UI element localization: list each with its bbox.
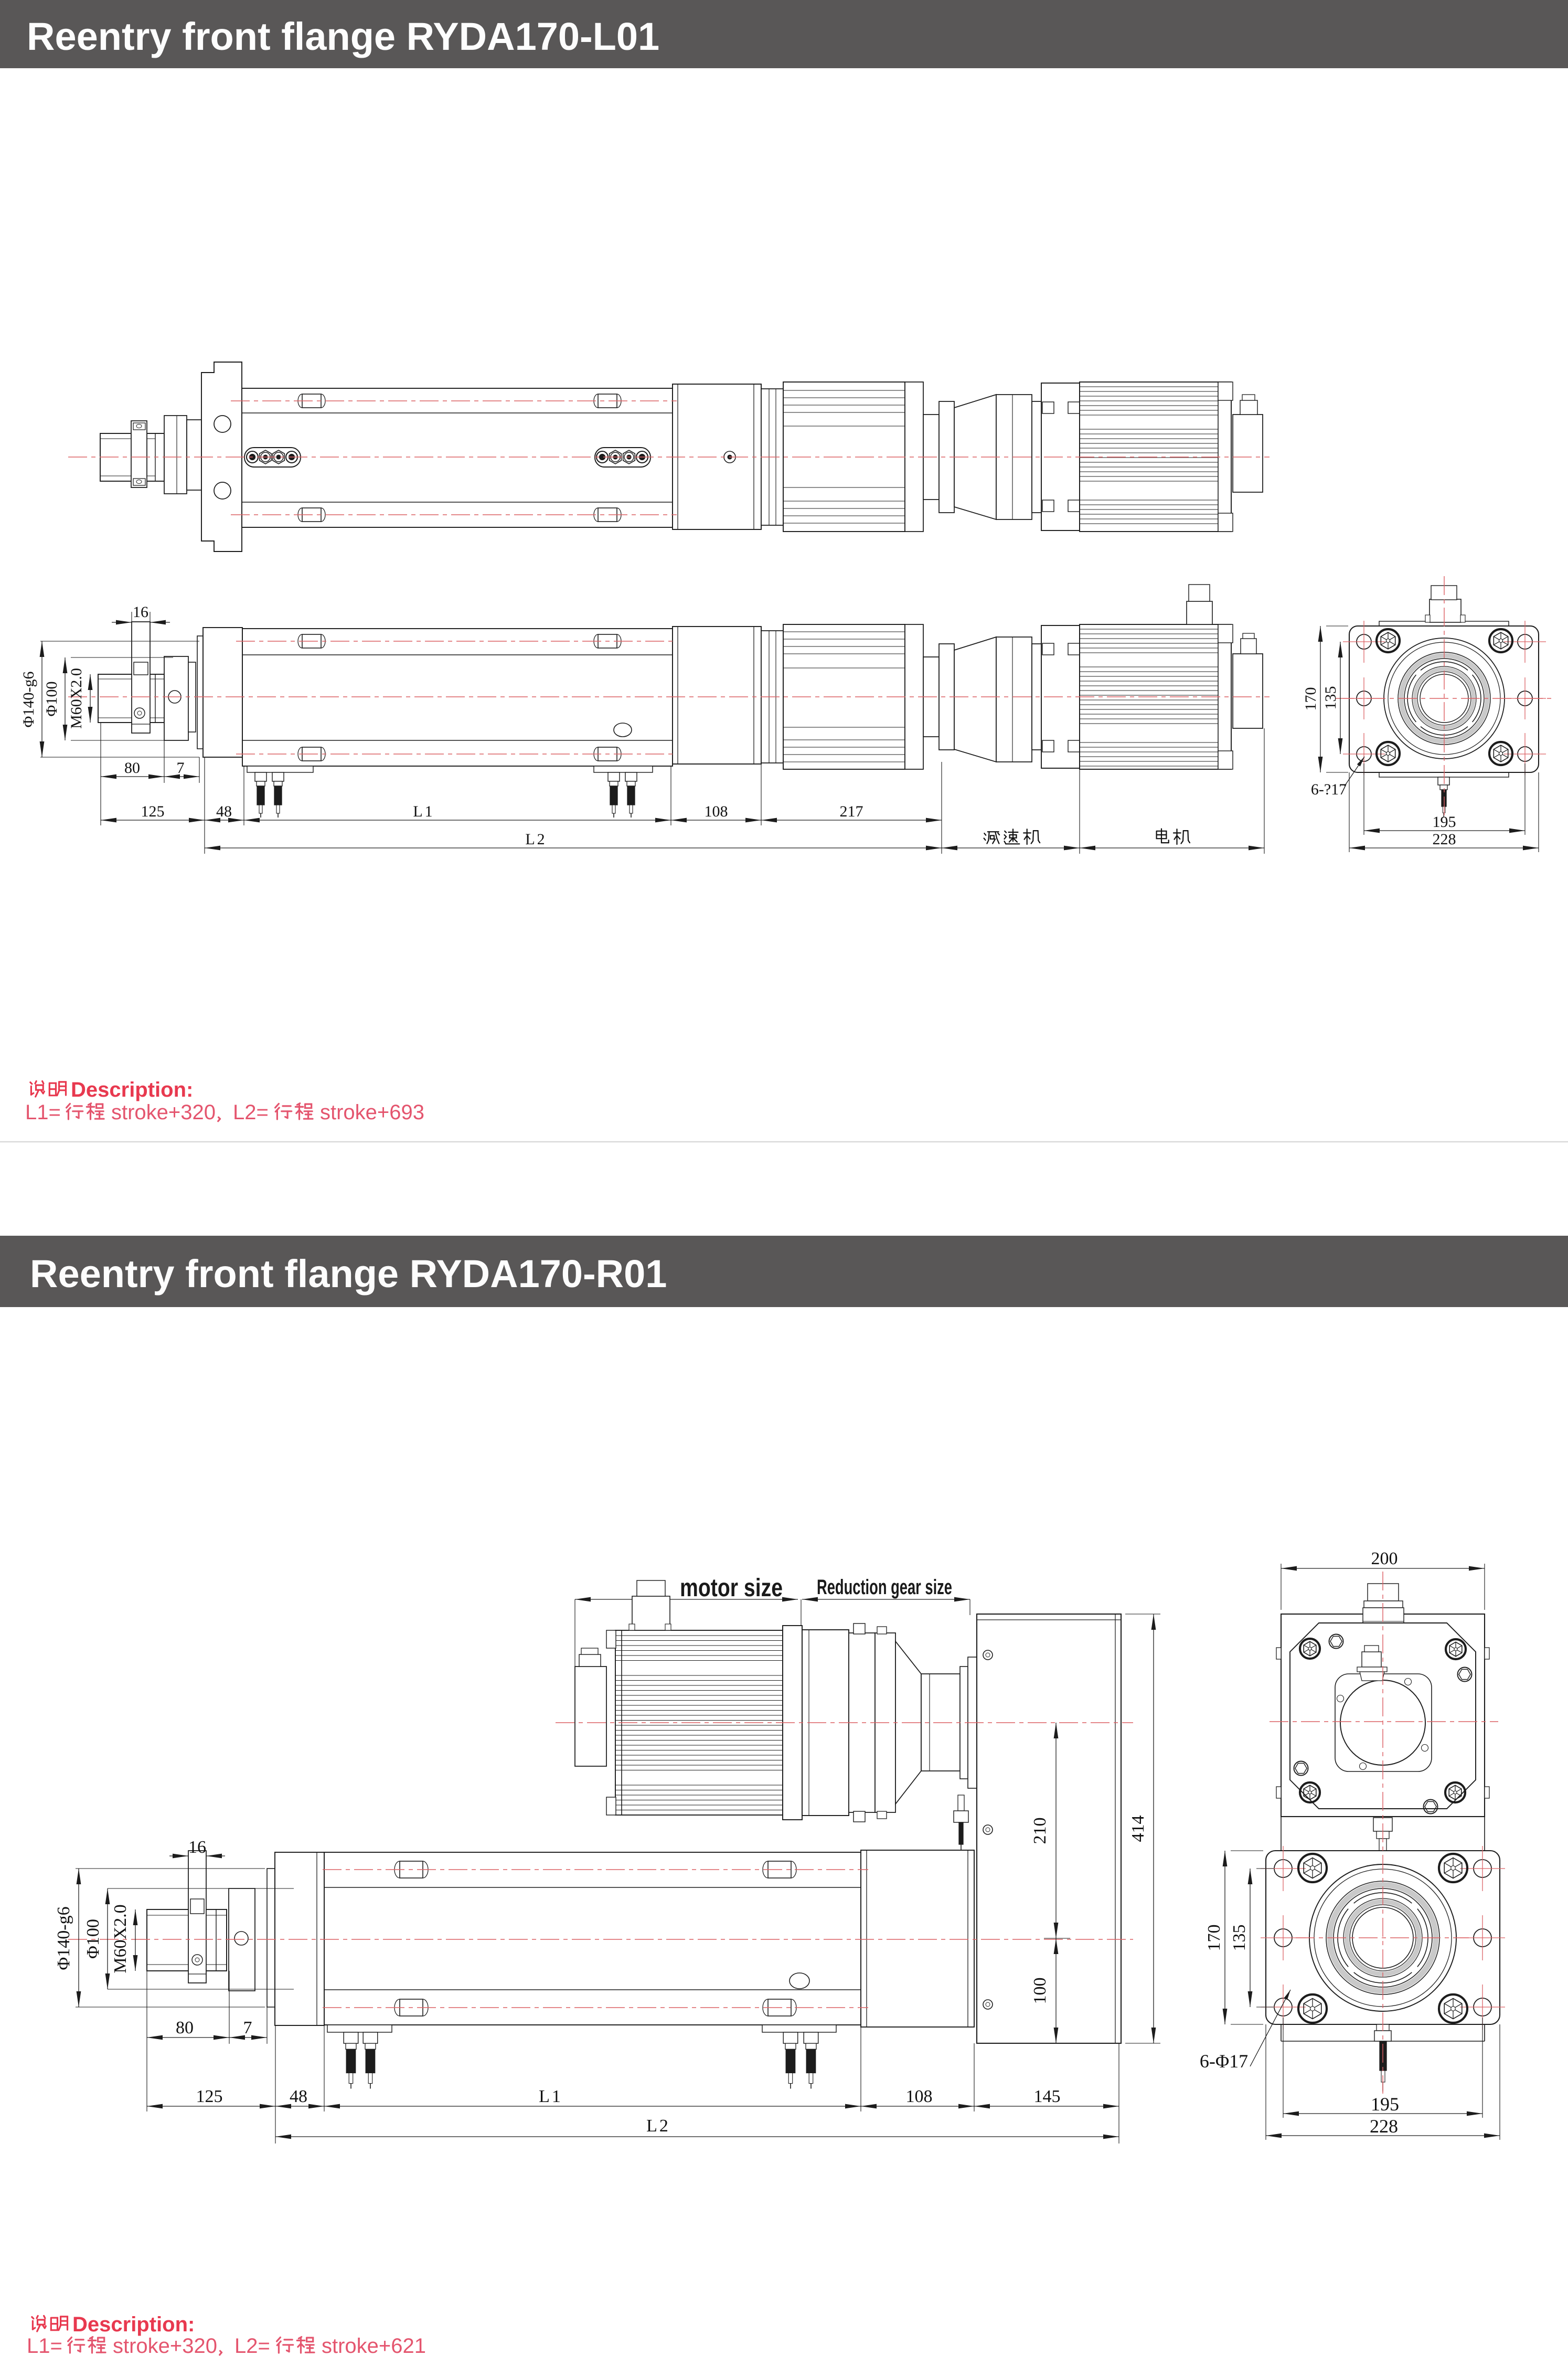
svg-text:48: 48 [290, 2087, 307, 2106]
svg-text:motor size: motor size [680, 1574, 783, 1602]
svg-text:Φ140-g6: Φ140-g6 [20, 672, 37, 728]
svg-text:108: 108 [906, 2087, 933, 2106]
svg-text:L2: L2 [646, 2116, 670, 2136]
svg-text:L1=: L1= [27, 2334, 62, 2356]
svg-text:195: 195 [1433, 813, 1456, 831]
svg-text:228: 228 [1370, 2116, 1398, 2137]
svg-text:80: 80 [176, 2018, 194, 2037]
svg-text:16: 16 [133, 603, 148, 621]
svg-text:16: 16 [188, 1838, 206, 1857]
svg-text:6-?17: 6-?17 [1311, 781, 1347, 798]
svg-text:L2=: L2= [233, 1101, 269, 1124]
svg-text:228: 228 [1433, 831, 1456, 848]
svg-text:135: 135 [1230, 1925, 1249, 1951]
svg-text:stroke+320: stroke+320 [111, 1101, 216, 1124]
svg-text:stroke+693: stroke+693 [320, 1101, 424, 1124]
svg-text:Reentry front flange RYDA170-R: Reentry front flange RYDA170-R01 [30, 1252, 667, 1296]
svg-text:Description:: Description: [72, 2313, 195, 2336]
svg-text:Reentry front flange RYDA170-L: Reentry front flange RYDA170-L01 [27, 15, 659, 58]
svg-text:210: 210 [1030, 1818, 1050, 1844]
svg-text:80: 80 [124, 759, 140, 777]
svg-text:L1=: L1= [25, 1101, 61, 1124]
svg-text:L2=: L2= [234, 2334, 270, 2356]
svg-text:7: 7 [243, 2018, 252, 2037]
svg-text:Φ100: Φ100 [43, 682, 60, 717]
svg-text:48: 48 [216, 803, 232, 820]
svg-text:170: 170 [1204, 1925, 1224, 1951]
svg-text:170: 170 [1302, 687, 1319, 711]
svg-text:7: 7 [177, 759, 185, 777]
svg-text:6-Φ17: 6-Φ17 [1200, 2051, 1248, 2072]
svg-text:125: 125 [196, 2087, 223, 2106]
svg-text:195: 195 [1371, 2094, 1399, 2115]
svg-text:414: 414 [1128, 1816, 1148, 1842]
svg-text:217: 217 [840, 803, 863, 820]
svg-text:Reduction gear size: Reduction gear size [817, 1576, 952, 1599]
svg-text:145: 145 [1034, 2087, 1061, 2106]
svg-text:M60X2.0: M60X2.0 [68, 668, 85, 729]
svg-text:135: 135 [1322, 686, 1339, 710]
svg-text:Description:: Description: [71, 1078, 193, 1101]
svg-text:125: 125 [141, 803, 165, 820]
svg-text:stroke+621: stroke+621 [322, 2334, 426, 2356]
svg-text:M60X2.0: M60X2.0 [111, 1904, 130, 1973]
svg-text:stroke+320: stroke+320 [113, 2334, 217, 2356]
svg-text:Φ100: Φ100 [83, 1919, 103, 1959]
svg-text:L1: L1 [413, 803, 434, 820]
svg-text:Φ140-g6: Φ140-g6 [54, 1906, 73, 1970]
svg-text:200: 200 [1371, 1549, 1398, 1568]
svg-text:100: 100 [1030, 1978, 1050, 2004]
svg-text:108: 108 [705, 803, 728, 820]
svg-text:L1: L1 [539, 2087, 563, 2106]
svg-text:L2: L2 [525, 831, 547, 848]
